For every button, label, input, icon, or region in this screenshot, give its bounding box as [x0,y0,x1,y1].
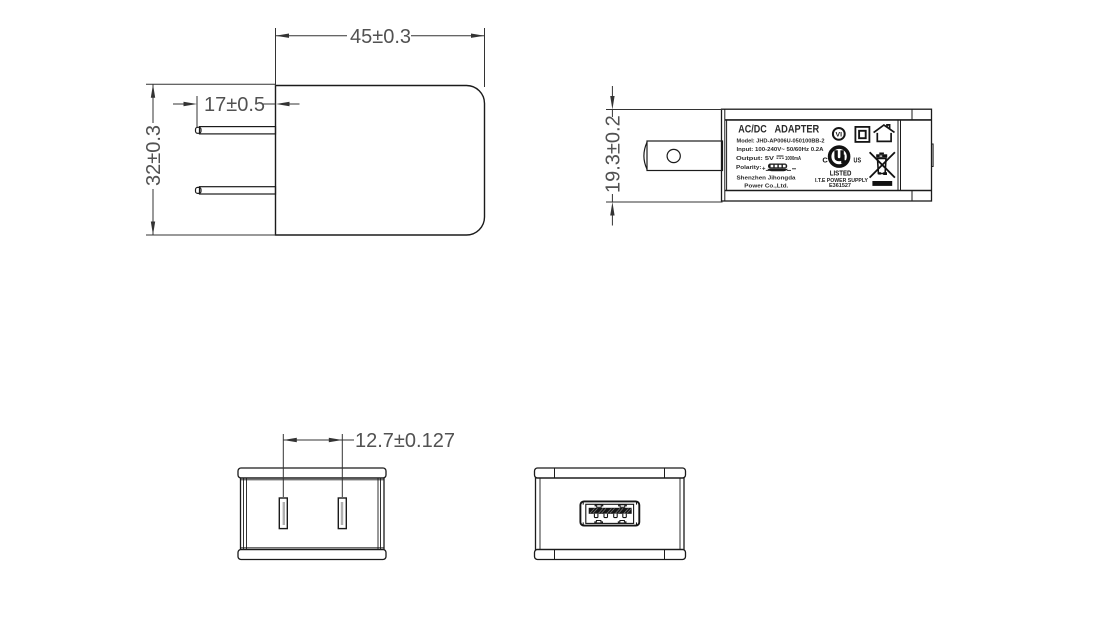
svg-text:Model: JHD-AP006U-050100BB-2: Model: JHD-AP006U-050100BB-2 [737,138,825,144]
svg-text:+: + [762,167,766,173]
svg-text:45±0.3: 45±0.3 [350,26,411,48]
svg-text:LISTED: LISTED [830,168,852,177]
svg-text:Shenzhen Jihongda: Shenzhen Jihongda [737,175,797,181]
svg-text:12.7±0.127: 12.7±0.127 [355,430,455,452]
svg-text:Input: 100-240V~ 50/60Hz 0.2: Input: 100-240V~ 50/60Hz 0.2A [737,147,825,153]
svg-text:ADAPTER: ADAPTER [775,124,820,136]
svg-text:Power Co.,Ltd.: Power Co.,Ltd. [744,184,788,190]
svg-text:1000mA: 1000mA [785,156,802,162]
svg-text:AC/DC: AC/DC [738,124,767,136]
svg-text:US: US [854,157,862,164]
svg-text:E361527: E361527 [829,183,851,189]
svg-text:Output: 5V: Output: 5V [736,156,774,162]
svg-text:Polarity:: Polarity: [736,165,762,171]
svg-text:32±0.3: 32±0.3 [143,125,165,186]
svg-text:17±0.5: 17±0.5 [204,94,265,116]
svg-text:19.3±0.2: 19.3±0.2 [603,115,625,193]
svg-text:C: C [822,155,828,164]
svg-text:VI: VI [836,131,843,138]
